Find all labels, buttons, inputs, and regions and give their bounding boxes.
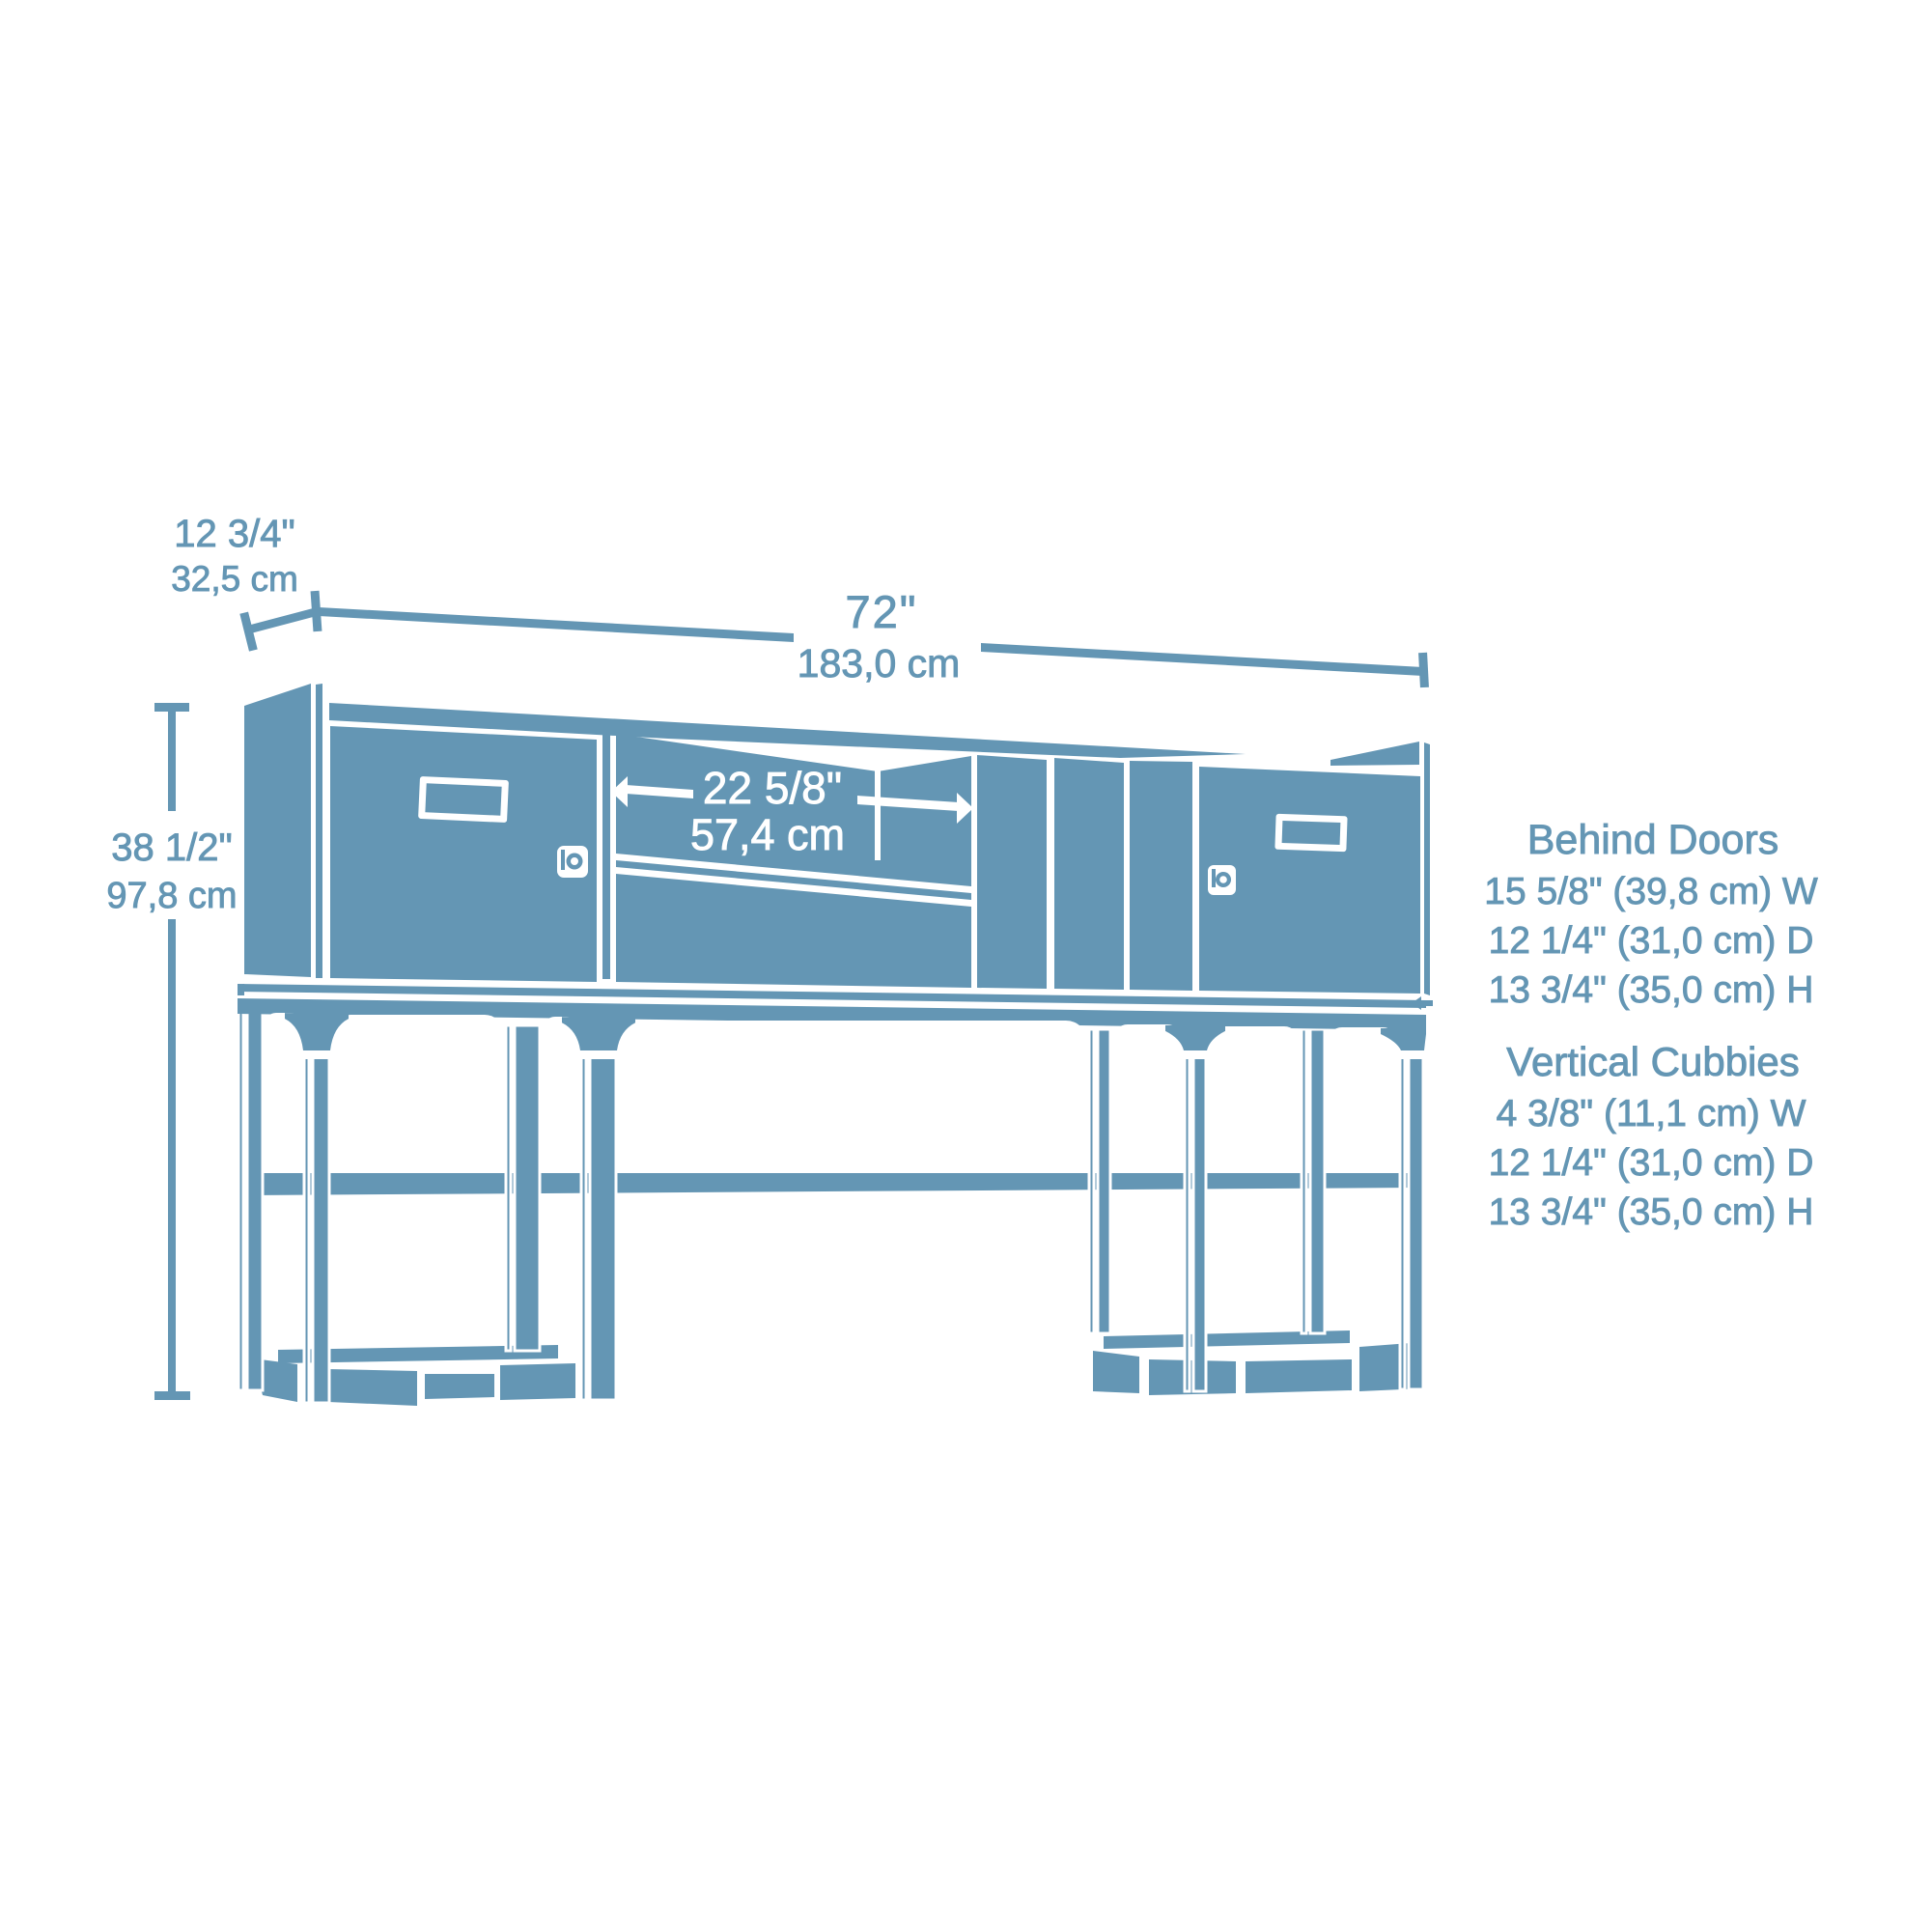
svg-text:38 1/2": 38 1/2" — [111, 826, 232, 869]
svg-text:183,0 cm: 183,0 cm — [798, 641, 961, 686]
svg-text:Vertical Cubbies: Vertical Cubbies — [1506, 1039, 1800, 1084]
svg-text:22 5/8": 22 5/8" — [703, 763, 842, 813]
svg-text:4 3/8" (11,1 cm) W: 4 3/8" (11,1 cm) W — [1497, 1093, 1806, 1134]
svg-text:15 5/8" (39,8 cm) W: 15 5/8" (39,8 cm) W — [1484, 871, 1818, 912]
svg-text:72": 72" — [846, 586, 918, 637]
svg-text:32,5 cm: 32,5 cm — [171, 559, 298, 599]
svg-text:97,8 cm: 97,8 cm — [106, 876, 237, 916]
svg-text:57,4 cm: 57,4 cm — [690, 810, 845, 859]
svg-text:12 1/4" (31,0 cm) D: 12 1/4" (31,0 cm) D — [1489, 1142, 1814, 1184]
svg-text:13 3/4" (35,0 cm) H: 13 3/4" (35,0 cm) H — [1489, 1191, 1814, 1233]
svg-text:Behind Doors: Behind Doors — [1527, 817, 1779, 863]
svg-text:12 3/4": 12 3/4" — [174, 513, 294, 555]
svg-text:13 3/4" (35,0 cm) H: 13 3/4" (35,0 cm) H — [1489, 969, 1814, 1011]
svg-text:12 1/4" (31,0 cm) D: 12 1/4" (31,0 cm) D — [1489, 920, 1814, 962]
